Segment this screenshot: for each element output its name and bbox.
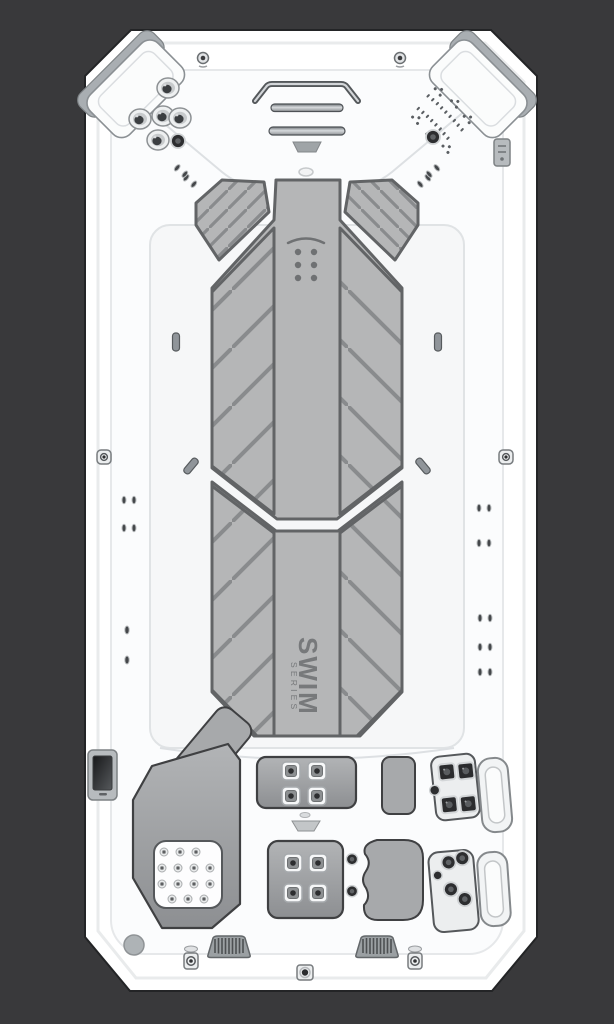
top-fitting [299, 168, 313, 176]
waterfall-spout [293, 142, 321, 152]
swim-spa-image: SWIM SERIES [0, 0, 614, 1024]
jet [171, 134, 185, 148]
jet-panel-lower-right [428, 849, 480, 933]
seat-jet-round [441, 855, 456, 870]
grab-handle-lower [476, 851, 511, 927]
grab-rail-upper [271, 104, 343, 112]
jet [129, 109, 151, 129]
seat-jet-dark [441, 796, 459, 814]
anchor-tab [173, 333, 180, 351]
corner-jet-right [426, 130, 440, 144]
seat-jet [284, 854, 302, 872]
seatback-center-upper [257, 757, 356, 808]
seat-jet [284, 884, 302, 902]
control-screen [93, 756, 112, 790]
seat-jet [282, 762, 300, 780]
floor-drain [297, 965, 313, 980]
jet [169, 108, 191, 128]
seat-jet-dark [460, 795, 478, 813]
seat-jet-round [455, 851, 470, 866]
scallop-jet [346, 854, 357, 865]
grab-handle-upper [477, 757, 513, 833]
rim-fitting-bottom-left [184, 946, 198, 969]
aux-keypad [494, 139, 510, 166]
wall-jet [125, 656, 129, 664]
seat-jet-round [457, 892, 472, 907]
round-fitting [124, 935, 144, 955]
seatback-center-lower [268, 841, 343, 918]
seat-jet [309, 884, 327, 902]
seat-jet-small [433, 870, 443, 880]
seat-jet-dark [457, 762, 475, 780]
rim-fitting-left [97, 450, 111, 464]
jet [147, 130, 169, 150]
seat-jet [282, 787, 300, 805]
seat-pad-right [382, 757, 415, 814]
speaker-grille-right [356, 936, 398, 958]
seat-jet-dark [438, 763, 456, 781]
speaker-grille-left [208, 936, 250, 958]
rim-fitting-right [499, 450, 513, 464]
scallop-jet [346, 886, 357, 897]
seat-jet [308, 787, 326, 805]
brand-series: SERIES [289, 662, 299, 712]
grab-rail-lower [269, 127, 345, 135]
seat-jet [308, 762, 326, 780]
wall-jet [125, 626, 129, 634]
seat-right-curved [363, 840, 423, 920]
seat-jet-small [429, 785, 440, 796]
jet [157, 78, 179, 98]
anchor-tab [435, 333, 442, 351]
rim-fitting-bottom-right [408, 946, 422, 969]
control-panel [88, 750, 117, 800]
seat-jet-round [443, 882, 458, 897]
seat-jet [309, 854, 327, 872]
control-home-button [99, 793, 107, 796]
